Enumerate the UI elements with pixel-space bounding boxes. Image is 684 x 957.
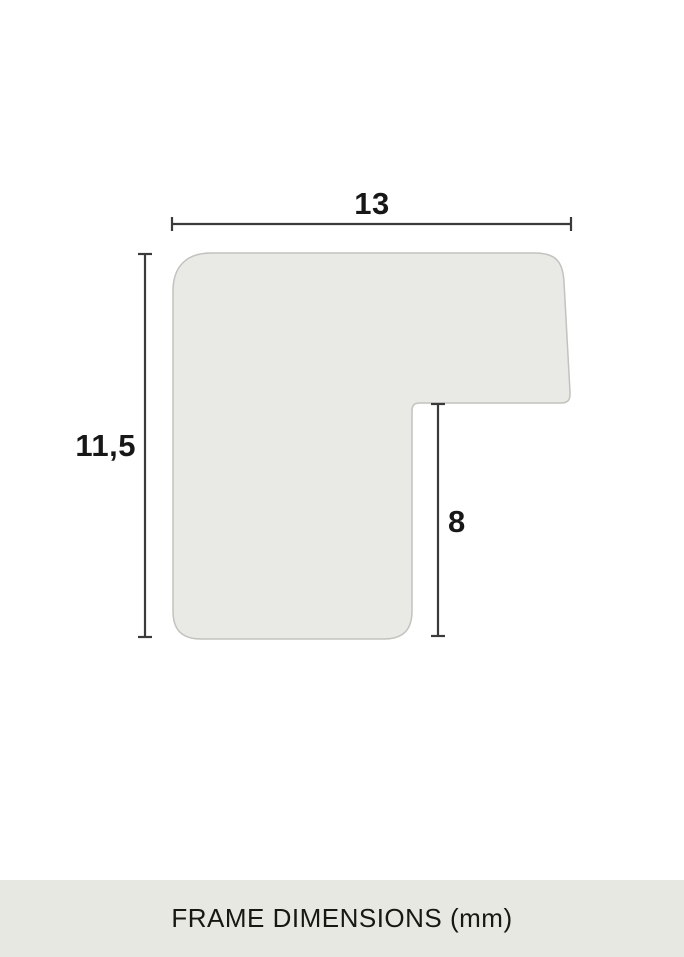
profile-diagram-canvas [0,0,684,957]
dimension-label-left-height: 11,5 [40,430,136,461]
frame-dimensions-diagram: 13 11,5 8 FRAME DIMENSIONS (mm) [0,0,684,957]
dimension-line-left-height [138,254,152,637]
dimension-line-notch-depth [431,404,445,636]
moulding-profile-shape [173,253,570,639]
footer-caption-bar: FRAME DIMENSIONS (mm) [0,880,684,957]
footer-caption-text: FRAME DIMENSIONS (mm) [171,903,512,934]
dimension-label-notch-depth: 8 [448,506,508,537]
dimension-label-top-width: 13 [310,188,434,219]
